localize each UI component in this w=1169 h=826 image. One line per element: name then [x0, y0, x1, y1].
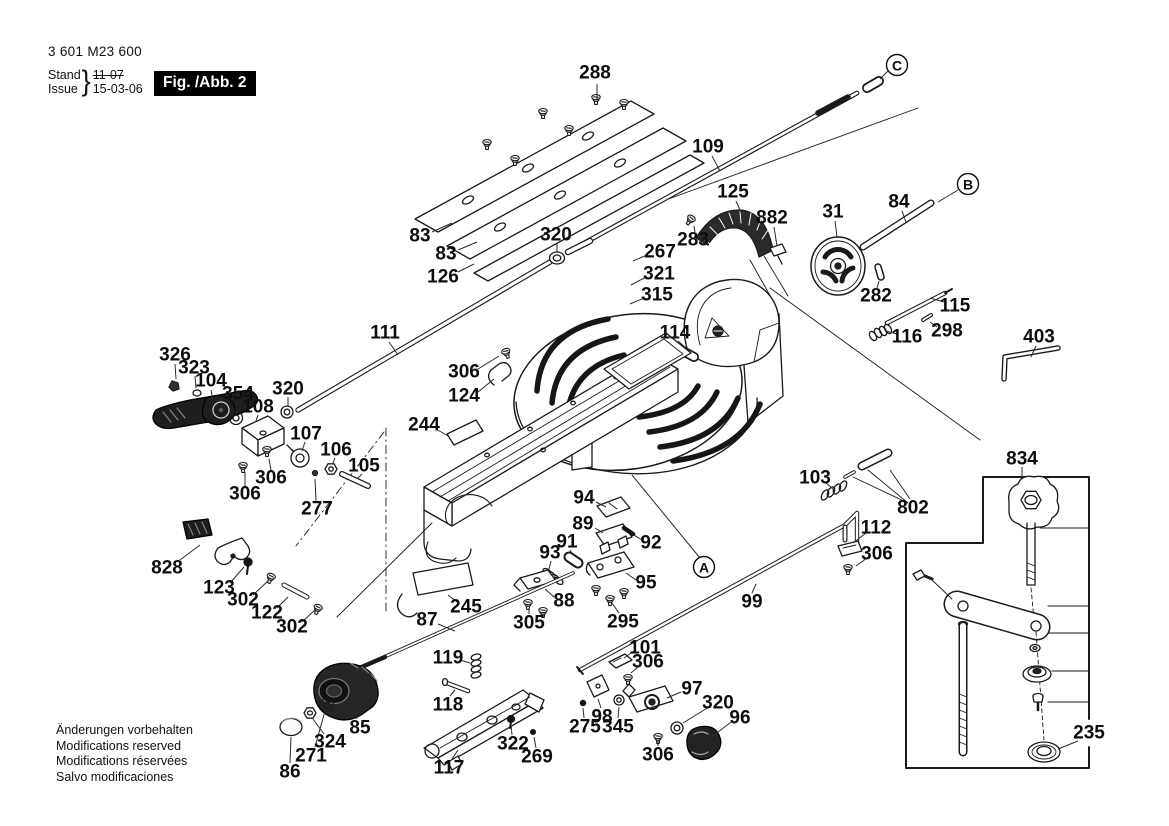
part-label-108: 108 [242, 397, 274, 418]
washer-320b [281, 406, 293, 418]
part-label-306: 306 [642, 745, 674, 766]
leader-line-C [880, 71, 888, 79]
part-label-324: 324 [314, 732, 346, 753]
part-label-115: 115 [940, 296, 971, 317]
part-label-93: 93 [539, 543, 560, 564]
part-label-87: 87 [416, 610, 437, 631]
part-label-103: 103 [799, 468, 831, 489]
screw-306-clip-124 [489, 347, 513, 385]
exploded-view-diagram: 2881098383126320267321315114111306124326… [0, 0, 1169, 826]
set-screw-277 [313, 471, 318, 476]
part-label-119: 119 [433, 648, 464, 669]
part-label-94: 94 [573, 488, 595, 509]
hex-nut-106 [325, 464, 337, 474]
part-label-244: 244 [408, 415, 440, 436]
part-label-126: 126 [427, 267, 459, 288]
part-label-321: 321 [643, 264, 675, 285]
part-label-107: 107 [290, 424, 322, 445]
part-label-31: 31 [822, 202, 844, 223]
part-label-85: 85 [349, 718, 371, 739]
part-label-111: 111 [370, 323, 400, 344]
part-label-305: 305 [513, 613, 545, 634]
notice-line: Modifications réservées [56, 754, 193, 770]
part-label-306: 306 [632, 652, 664, 673]
part-label-245: 245 [450, 597, 482, 618]
part-label-306: 306 [861, 544, 893, 565]
notice-line: Salvo modificaciones [56, 770, 193, 786]
revision-block: Stand Issue } 11-07 15-03-06 [48, 66, 143, 97]
bracket-98 [587, 675, 609, 697]
part-label-283: 283 [677, 230, 709, 251]
part-label-118: 118 [433, 695, 464, 716]
part-label-882: 882 [756, 208, 788, 229]
part-label-320: 320 [272, 379, 304, 400]
fence-screw-icon [483, 140, 491, 150]
leader-line-882 [774, 227, 777, 246]
bevel-housing-dome [684, 279, 779, 366]
header-block: 3 601 M23 600 [48, 44, 142, 59]
part-label-302: 302 [276, 617, 308, 638]
leader-line-828 [180, 545, 200, 560]
part-label-315: 315 [641, 285, 673, 306]
figure-label-box: Fig. /Abb. 2 [154, 71, 256, 96]
part-label-95: 95 [635, 573, 657, 594]
screw-123 [244, 558, 252, 566]
part-label-235: 235 [1073, 723, 1105, 744]
washer-320 [671, 722, 683, 734]
part-label-834: 834 [1006, 449, 1038, 470]
part-label-99: 99 [741, 592, 762, 613]
part-label-828: 828 [151, 558, 183, 579]
part-label-83: 83 [409, 226, 430, 247]
collar-107 [291, 449, 309, 467]
part-label-112: 112 [861, 518, 892, 539]
part-label-306: 306 [448, 362, 480, 383]
part-label-92: 92 [640, 533, 661, 554]
part-label-109: 109 [692, 137, 724, 158]
leader-line-86 [290, 737, 291, 763]
brace-glyph: } [82, 65, 91, 98]
notice-line: Modifications reserved [56, 739, 193, 755]
part-label-320: 320 [540, 225, 572, 246]
wing-screw [913, 570, 925, 580]
inset-detail-box [906, 476, 1089, 768]
type-number: 3 601 M23 600 [48, 44, 142, 59]
part-label-116: 116 [892, 327, 923, 348]
stand-value: 11-07 [93, 68, 143, 82]
washer-345 [614, 695, 624, 705]
part-label-125: 125 [717, 182, 749, 203]
scale-screw-icon [684, 214, 697, 227]
part-label-802: 802 [897, 498, 929, 519]
footer-notices: Änderungen vorbehalten Modifications res… [56, 723, 193, 785]
part-label-295: 295 [607, 612, 639, 633]
leader-line-326 [175, 364, 176, 379]
part-label-282: 282 [860, 286, 892, 307]
part-label-96: 96 [729, 708, 750, 729]
ref-letter-A: A [699, 560, 709, 576]
handwheel-31 [811, 237, 865, 295]
part-label-97: 97 [681, 679, 702, 700]
issue-value: 15-03-06 [93, 82, 143, 96]
nut-326 [169, 381, 179, 391]
notice-line: Änderungen vorbehalten [56, 723, 193, 739]
part-label-275: 275 [569, 717, 601, 738]
screw-269 [531, 730, 536, 735]
leader-line-B [938, 190, 958, 202]
part-label-269: 269 [521, 747, 553, 768]
part-label-117: 117 [434, 758, 465, 779]
stand-label: Stand [48, 68, 81, 82]
part-label-123: 123 [203, 578, 235, 599]
hex-nut-324 [304, 708, 316, 718]
leader-line-96 [713, 722, 731, 736]
screw-275 [580, 700, 585, 705]
fence-screw-icon [592, 95, 600, 105]
part-label-298: 298 [931, 321, 963, 342]
part-label-83: 83 [435, 244, 456, 265]
issue-label: Issue [48, 82, 81, 96]
leader-line-31 [835, 221, 837, 237]
allen-key-403 [1004, 348, 1058, 379]
part-label-106: 106 [320, 440, 352, 461]
part-label-277: 277 [301, 499, 333, 520]
ref-letter-C: C [892, 58, 902, 74]
part-label-288: 288 [579, 63, 611, 84]
part-label-88: 88 [553, 591, 574, 612]
leader-line-802 [890, 470, 910, 499]
fence-screw-icon [539, 109, 547, 119]
label-plate-244 [447, 420, 483, 445]
part-label-403: 403 [1023, 327, 1055, 348]
part-label-105: 105 [348, 456, 380, 477]
part-label-345: 345 [602, 717, 634, 738]
part-label-114: 114 [660, 323, 691, 344]
part-label-124: 124 [448, 386, 480, 407]
parts-diagram-page: 2881098383126320267321315114111306124326… [0, 0, 1169, 826]
leader-line-124 [478, 379, 494, 392]
part-label-306: 306 [229, 484, 261, 505]
part-label-84: 84 [888, 192, 910, 213]
part-label-267: 267 [644, 242, 676, 263]
leader-line-126 [458, 264, 474, 272]
ref-letter-B: B [963, 177, 973, 193]
pivot-rod-84 [863, 203, 931, 277]
